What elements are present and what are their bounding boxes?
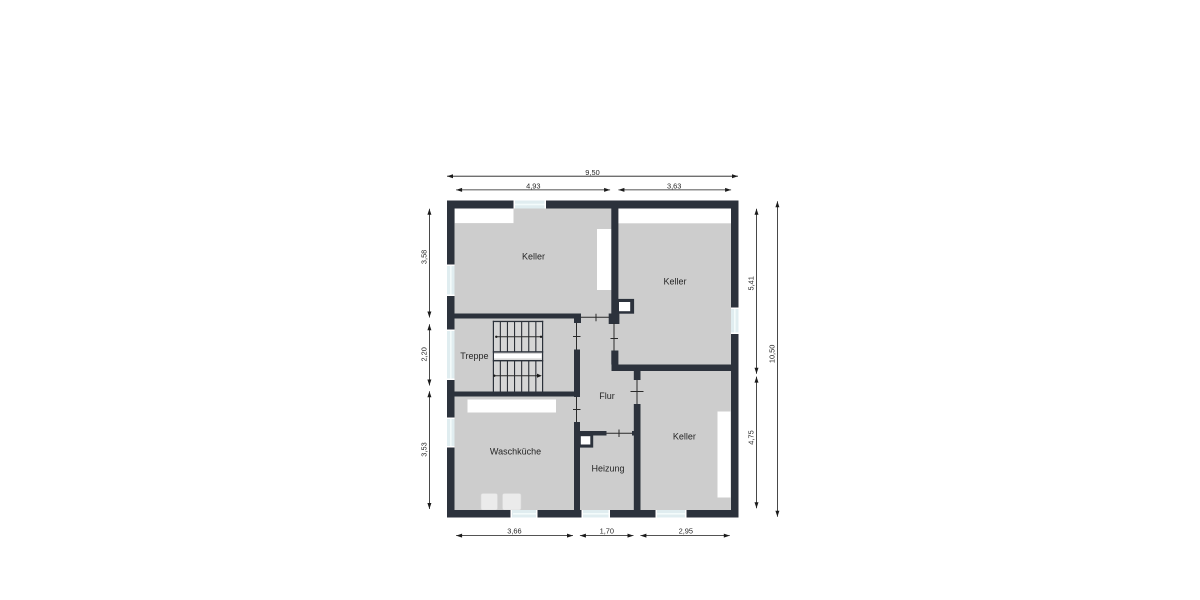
svg-text:Flur: Flur: [599, 391, 615, 401]
svg-text:Waschküche: Waschküche: [490, 447, 541, 457]
svg-text:1,70: 1,70: [600, 527, 614, 536]
svg-text:Keller: Keller: [673, 432, 696, 442]
svg-text:4,75: 4,75: [747, 430, 756, 444]
svg-text:3,58: 3,58: [419, 250, 428, 264]
svg-text:Keller: Keller: [522, 252, 545, 262]
svg-text:3,53: 3,53: [419, 442, 428, 456]
svg-text:5,41: 5,41: [747, 276, 756, 290]
svg-text:3,63: 3,63: [667, 182, 681, 191]
svg-text:Keller: Keller: [663, 277, 686, 287]
svg-text:4,93: 4,93: [526, 182, 540, 191]
svg-text:Treppe: Treppe: [460, 351, 488, 361]
svg-text:Heizung: Heizung: [591, 464, 624, 474]
svg-text:9,50: 9,50: [585, 168, 599, 177]
svg-text:2,20: 2,20: [419, 347, 428, 361]
svg-text:2,95: 2,95: [679, 527, 693, 536]
svg-text:10,50: 10,50: [767, 345, 776, 364]
svg-text:3,66: 3,66: [507, 527, 521, 536]
